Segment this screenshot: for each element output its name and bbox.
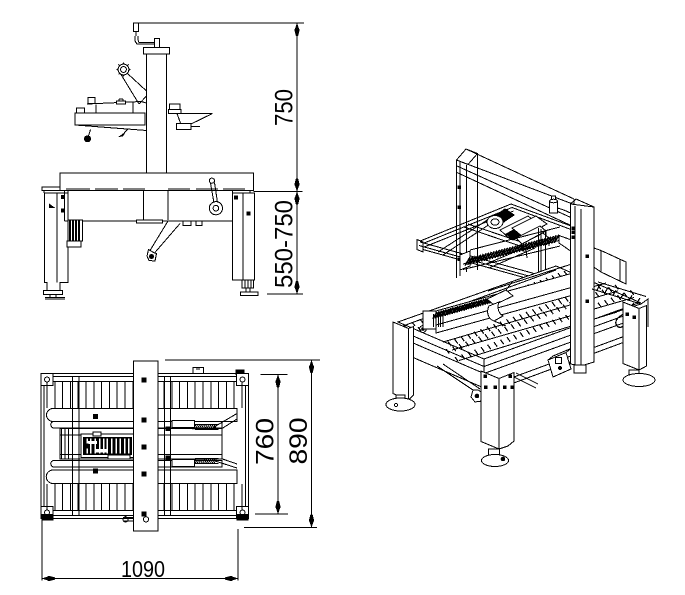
svg-text:1090: 1090 [121, 556, 165, 582]
svg-text:760: 760 [252, 418, 280, 465]
svg-text:890: 890 [285, 418, 313, 465]
svg-text:750: 750 [271, 89, 299, 126]
svg-text:550-750: 550-750 [271, 200, 299, 288]
